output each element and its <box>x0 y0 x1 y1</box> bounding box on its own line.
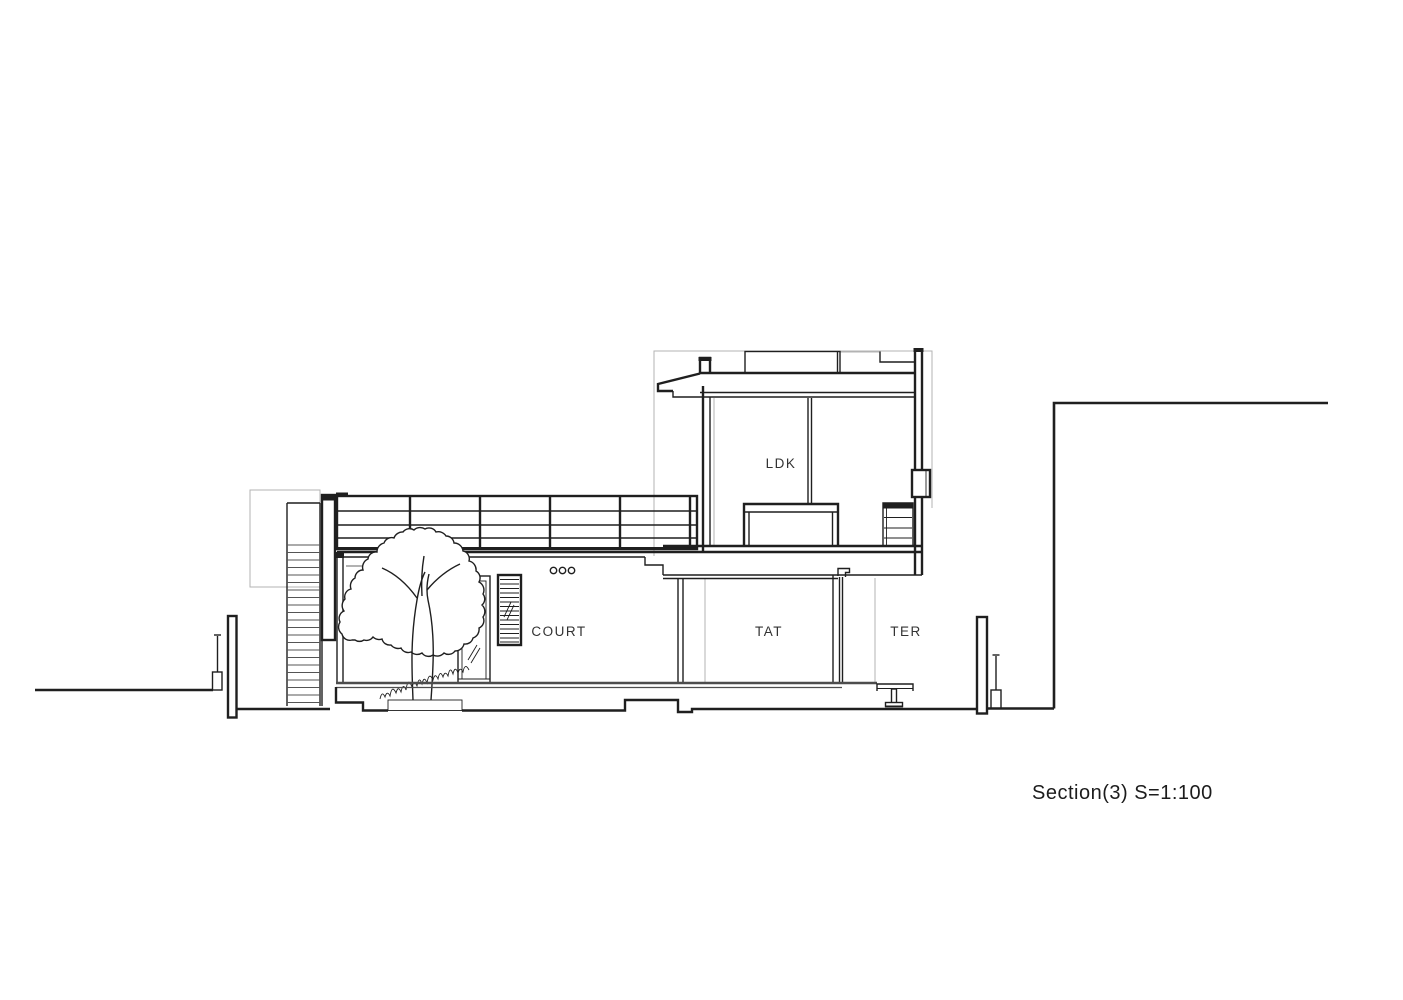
boundary-wall-right <box>1054 403 1328 709</box>
room-label-ter: TER <box>890 624 922 639</box>
interior-partition <box>808 398 812 504</box>
drawing-caption: Section(3) S=1:100 <box>1032 782 1213 804</box>
shelf-unit <box>883 503 913 546</box>
sofa <box>744 504 838 546</box>
terrace-bench <box>877 684 913 707</box>
room-label-tat: TAT <box>755 624 783 639</box>
tree <box>339 528 485 700</box>
ceiling-lights <box>550 567 574 573</box>
tat-ceiling <box>663 575 922 579</box>
architectural-section-drawing: LDK COURT TAT TER Section(3) S=1:100 <box>0 0 1403 1000</box>
ground-line <box>35 687 1054 712</box>
roof-slab <box>658 352 915 398</box>
fence-post-left <box>213 616 237 718</box>
section-drawing-canvas: LDK COURT TAT TER Section(3) S=1:100 <box>0 0 1403 1000</box>
court-louver-panel <box>498 575 521 645</box>
planter-box <box>388 700 462 711</box>
cut-wall-post <box>322 495 335 640</box>
exterior-stair <box>287 503 322 706</box>
fence-post-right <box>977 617 1001 714</box>
room-label-court: COURT <box>531 624 586 639</box>
clerestory-window <box>745 352 840 374</box>
wall-mounted-box <box>912 470 930 497</box>
room-label-ldk: LDK <box>766 456 797 471</box>
sliding-door <box>838 569 850 684</box>
